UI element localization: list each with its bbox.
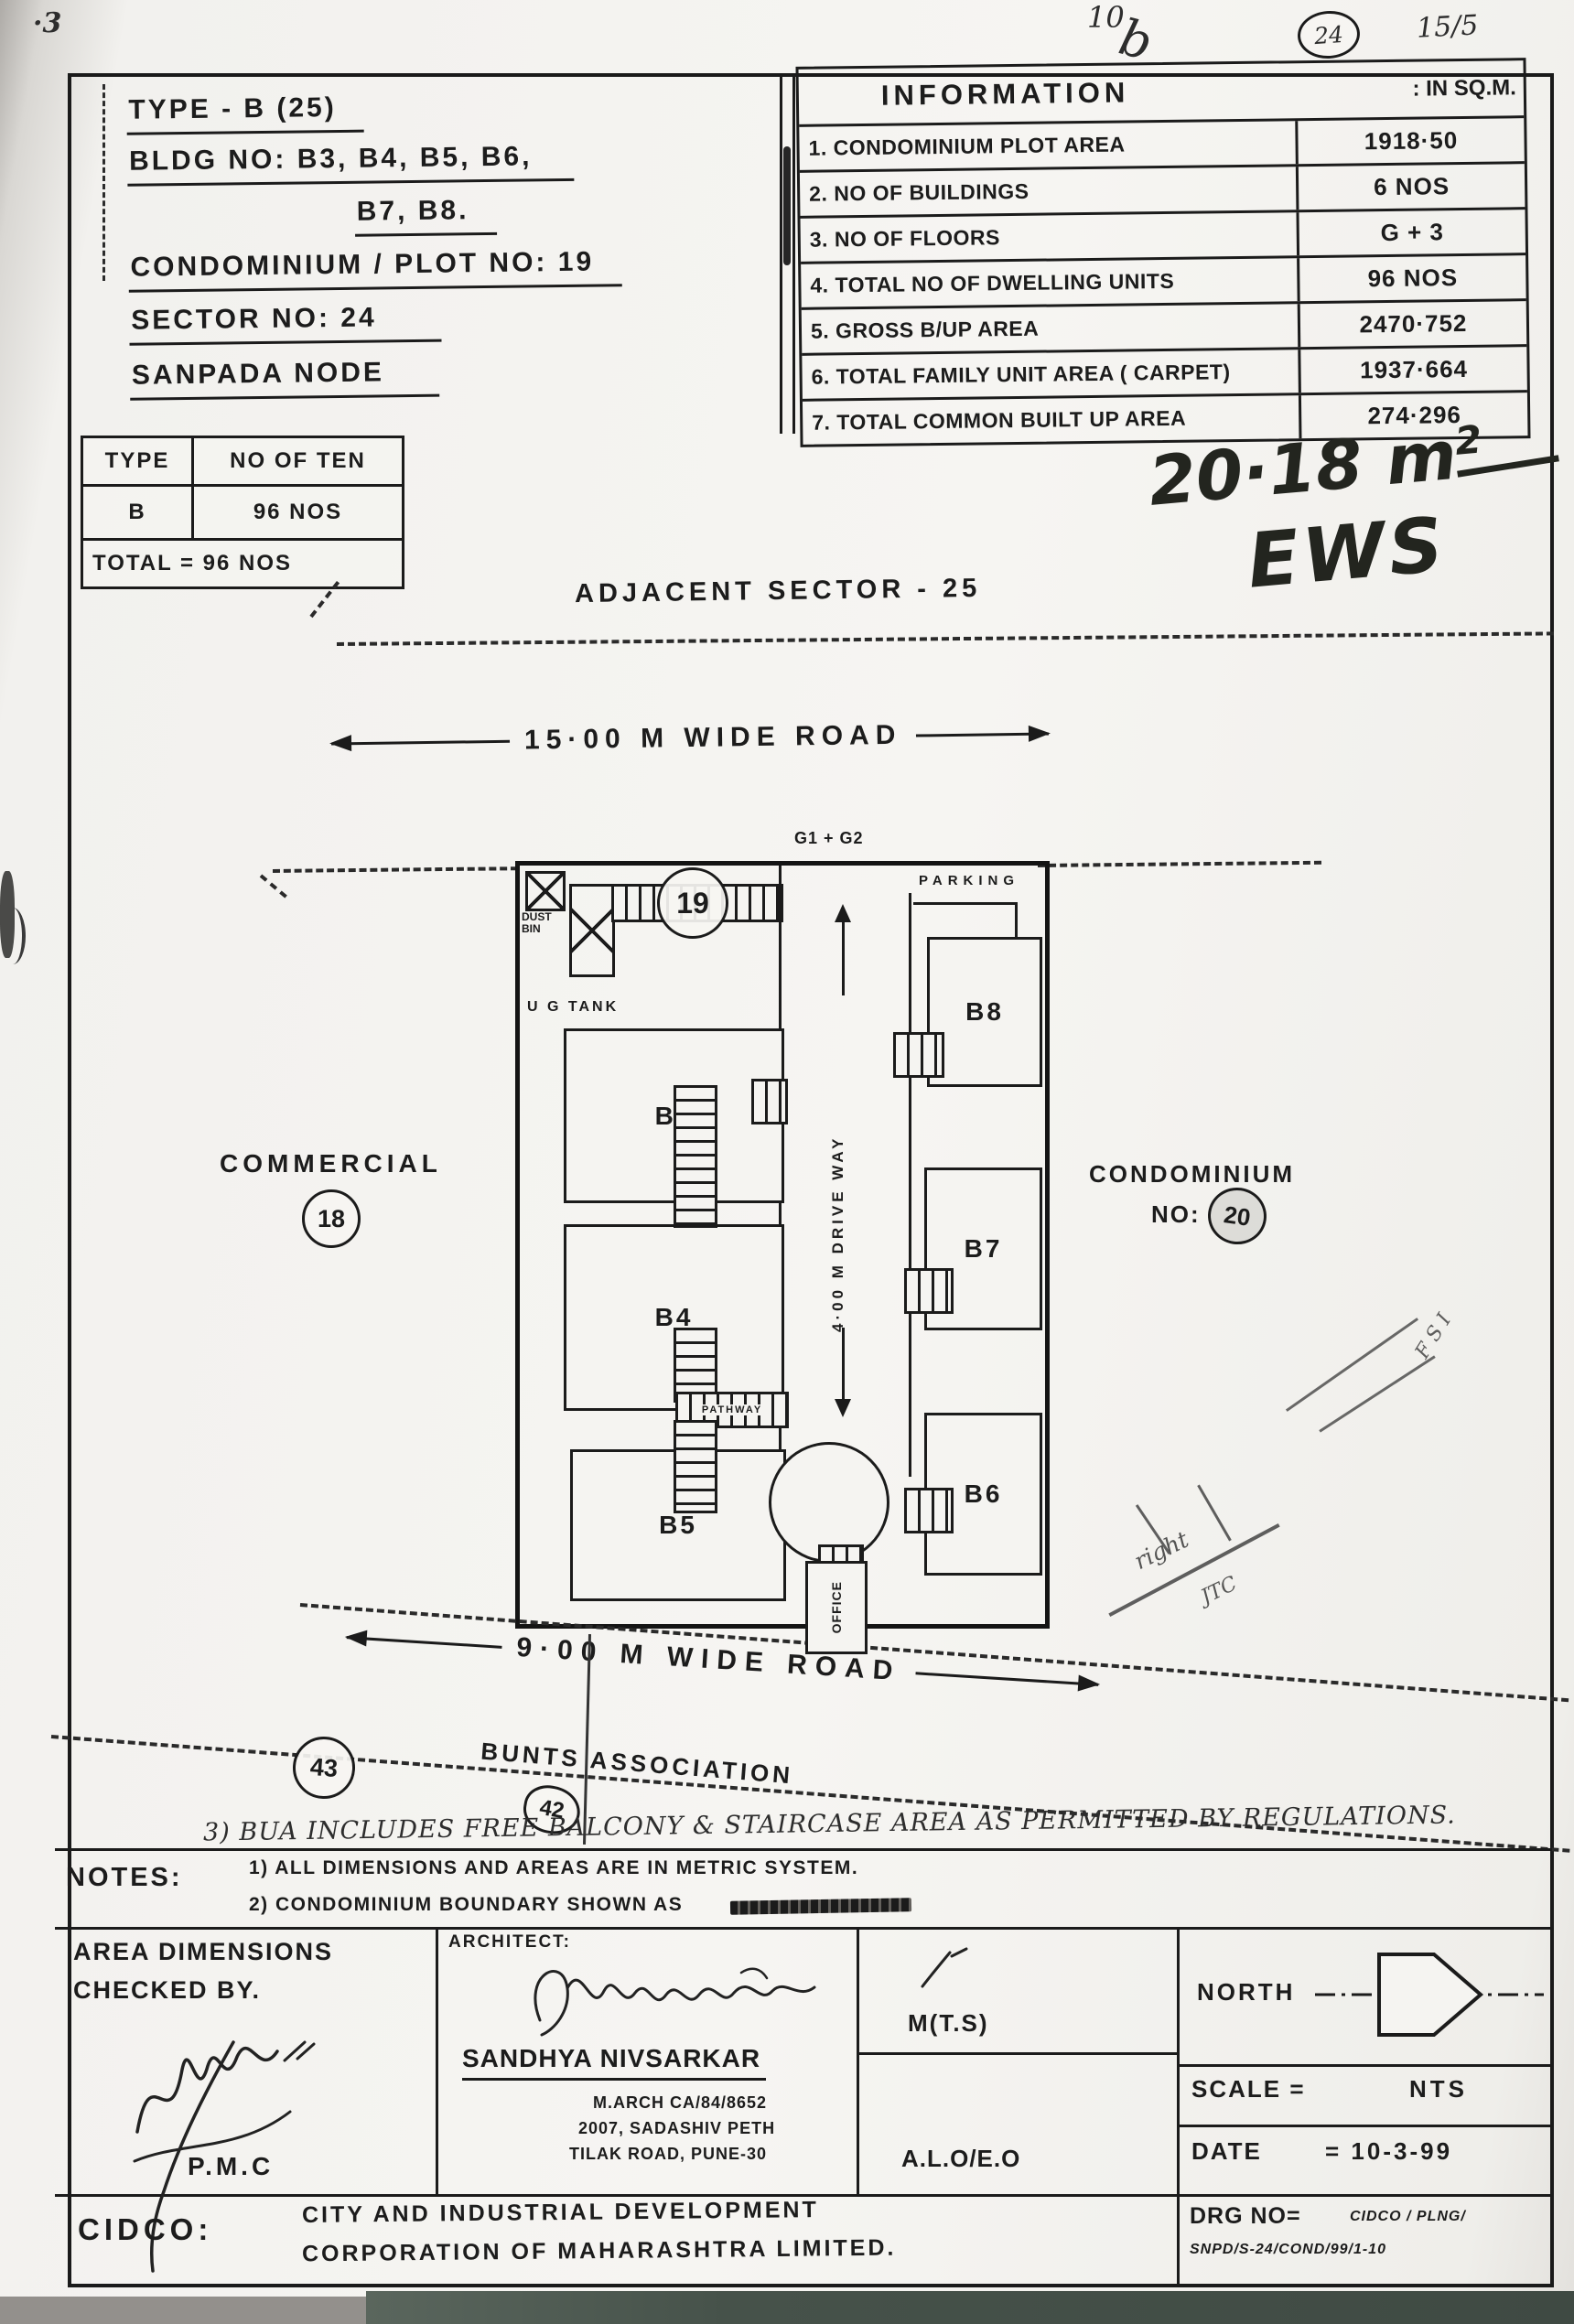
title-bldg-no: BLDG NO: B3, B4, B5, B6, — [127, 141, 575, 187]
footer-v2 — [857, 1927, 859, 2197]
north-arrow-icon — [1310, 1942, 1548, 2047]
scan-bottom-band-dark — [366, 2291, 1574, 2324]
parking-label: PARKING — [919, 873, 1019, 888]
architect-reg: M.ARCH CA/84/8652 — [593, 2093, 767, 2113]
info-row-1: 1. CONDOMINIUM PLOT AREA1918·50 — [799, 115, 1525, 170]
divider-ink-blob — [783, 146, 791, 265]
pathway-label: PATHWAY — [700, 1404, 764, 1415]
office-box: OFFICE — [805, 1561, 868, 1654]
building-b6-label: B6 — [965, 1479, 1003, 1509]
info-row-1-value: 1918·50 — [1295, 118, 1525, 164]
scale-value: NTS — [1409, 2075, 1468, 2103]
type-col-header: TYPE — [83, 438, 191, 484]
info-row-2-value: 6 NOS — [1296, 164, 1525, 210]
info-row-3-label: 3. NO OF FLOORS — [801, 212, 1298, 262]
plot-number-circle: 19 — [657, 867, 728, 939]
title-node: SANPADA NODE — [130, 357, 440, 401]
info-row-3-value: G + 3 — [1296, 210, 1525, 255]
cidco-name-line1: CITY AND INDUSTRIAL DEVELOPMENT — [302, 2197, 819, 2229]
pmc-label: P.M.C — [188, 2152, 274, 2181]
type-b-count-cell: 96 NOS — [191, 487, 402, 538]
type-total-cell: TOTAL = 96 NOS — [83, 541, 292, 586]
checked-by-line1: AREA DIMENSIONS — [73, 1938, 333, 1966]
g1-g2-label: G1 + G2 — [794, 829, 864, 848]
b6-stair-connector — [904, 1488, 954, 1533]
drg-no-value-1: CIDCO / PLNG/ — [1350, 2209, 1466, 2225]
information-header-row: INFORMATION : IN SQ.M. — [799, 60, 1525, 124]
architect-addr2: TILAK ROAD, PUNE-30 — [569, 2145, 767, 2164]
type-b-cell: B — [83, 487, 191, 538]
driveway-up-arrowhead-icon — [835, 904, 851, 922]
ug-tank-box — [569, 884, 615, 977]
mts-tick-mark — [915, 1945, 979, 1996]
road-top-text: 15·00 M WIDE ROAD — [524, 720, 902, 757]
condominium-right-label: CONDOMINIUM — [1089, 1160, 1295, 1189]
road-top-arrow-right — [916, 732, 1049, 737]
information-title: INFORMATION — [799, 62, 1369, 124]
b5-stair-strip — [674, 1420, 717, 1513]
footer-north-rule — [1177, 2064, 1552, 2067]
road-top-arrow-left — [331, 739, 510, 745]
date-value: = 10-3-99 — [1325, 2137, 1452, 2166]
info-row-4-label: 4. TOTAL NO OF DWELLING UNITS — [801, 258, 1298, 307]
ug-tank-label: U G TANK — [527, 999, 619, 1016]
title-condominium-plot: CONDOMINIUM / PLOT NO: 19 — [128, 246, 621, 293]
plot-boundary: DUST BIN U G TANK 19 4·00 M DRIVE WAY OF… — [515, 861, 1050, 1629]
building-b8-label: B8 — [965, 997, 1004, 1027]
info-row-2: 2. NO OF BUILDINGS6 NOS — [800, 161, 1525, 216]
footer-v1 — [436, 1927, 438, 2197]
plot-43-text: 43 — [309, 1752, 339, 1782]
scanned-drawing-sheet: ·3 10 b 24 15/5 TYPE - B (25) BLDG NO: B… — [0, 0, 1574, 2324]
area-value-sup: 2 — [1453, 417, 1483, 464]
commercial-circle-18: 18 — [302, 1189, 361, 1248]
parking-line-h — [913, 902, 1017, 905]
info-row-1-label: 1. CONDOMINIUM PLOT AREA — [799, 121, 1296, 170]
office-label: OFFICE — [829, 1581, 844, 1633]
scale-label: SCALE = — [1191, 2075, 1306, 2103]
notes-top-rule — [55, 1848, 1552, 1851]
b3-b4-stair-strip — [674, 1085, 717, 1228]
title-block: TYPE - B (25) BLDG NO: B3, B4, B5, B6, B… — [0, 0, 826, 462]
b8-stair-connector — [893, 1032, 944, 1078]
note-1: 1) ALL DIMENSIONS AND AREAS ARE IN METRI… — [249, 1857, 858, 1879]
top-circled-24: 24 — [1296, 9, 1361, 61]
driveway-down-arrow-line — [842, 1328, 845, 1401]
condominium-no-label: NO: — [1151, 1200, 1201, 1229]
arrow-right-icon — [1029, 725, 1051, 741]
info-row-2-label: 2. NO OF BUILDINGS — [800, 167, 1297, 216]
top-date-mark: 15/5 — [1416, 9, 1479, 44]
driveway-right-line — [909, 893, 911, 1477]
commercial-circle-text: 18 — [318, 1205, 345, 1233]
condominium-circle-text: 20 — [1223, 1200, 1253, 1232]
arrow-left-icon — [329, 735, 351, 751]
info-row-5: 5. GROSS B/UP AREA2470·752 — [802, 298, 1527, 353]
drg-no-value-2: SNPD/S-24/COND/99/1-10 — [1190, 2242, 1386, 2258]
plot-number-text: 19 — [676, 887, 709, 920]
driveway-b3-connector — [751, 1079, 788, 1124]
footer-top-rule — [55, 1927, 1552, 1930]
adjacent-sector-label: ADJACENT SECTOR - 25 — [575, 574, 982, 609]
info-row-4: 4. TOTAL NO OF DWELLING UNITS96 NOS — [801, 253, 1526, 307]
building-b7-label: B7 — [965, 1234, 1003, 1264]
building-b5-label: B5 — [659, 1511, 697, 1540]
driveway-label: 4·00 M DRIVE WAY — [829, 1003, 847, 1332]
info-row-6-value: 1937·664 — [1298, 347, 1527, 393]
architect-signature — [512, 1947, 833, 2048]
architect-addr1: 2007, SADASHIV PETH — [578, 2119, 775, 2138]
footer-scale-rule — [1177, 2125, 1552, 2127]
scan-bottom-band-light — [0, 2297, 366, 2324]
title-type: TYPE - B (25) — [126, 92, 364, 135]
top-circled-24-text: 24 — [1313, 20, 1344, 48]
tenements-col-header: NO OF TEN — [191, 438, 402, 484]
footer-v3 — [1177, 1927, 1180, 2286]
info-row-5-value: 2470·752 — [1298, 301, 1527, 347]
road-bottom-arrow-right — [915, 1672, 1098, 1686]
info-row-5-label: 5. GROSS B/UP AREA — [802, 304, 1299, 353]
scan-left-paren-mark — [0, 908, 26, 964]
dust-bin-box — [525, 871, 566, 911]
drg-no-label: DRG NO= — [1190, 2203, 1301, 2230]
divider-line-2 — [792, 75, 795, 434]
mts-label: M(T.S) — [908, 2009, 989, 2038]
info-row-6-label: 6. TOTAL FAMILY UNIT AREA ( CARPET) — [802, 350, 1299, 399]
info-row-6: 6. TOTAL FAMILY UNIT AREA ( CARPET)1937·… — [802, 344, 1527, 399]
architect-name: SANDHYA NIVSARKAR — [462, 2044, 766, 2081]
information-unit: : IN SQ.M. — [1367, 60, 1524, 117]
info-row-4-value: 96 NOS — [1297, 255, 1526, 301]
alo-eo-label: A.L.O/E.O — [901, 2145, 1020, 2173]
arrow-right-icon-2 — [1077, 1674, 1100, 1692]
type-table-row-b: B 96 NOS — [83, 484, 402, 538]
divider-line-1 — [780, 75, 782, 434]
top-handwritten-10: 10 — [1087, 0, 1125, 35]
date-label: DATE — [1191, 2137, 1262, 2166]
road-bottom-arrow-left — [347, 1636, 502, 1649]
driveway-up-arrow-line — [842, 920, 845, 995]
arrow-left-icon-2 — [344, 1629, 367, 1646]
dust-bin-label: DUST BIN — [522, 911, 564, 935]
cidco-label: CIDCO: — [78, 2212, 212, 2247]
north-label: NORTH — [1197, 1978, 1295, 2007]
title-sector: SECTOR NO: 24 — [129, 302, 441, 346]
parking-line-v — [1015, 902, 1018, 939]
commercial-label: COMMERCIAL — [220, 1149, 442, 1178]
notes-label: NOTES: — [66, 1863, 183, 1893]
checked-by-line2: CHECKED BY. — [73, 1976, 261, 2005]
handwritten-ews: EWS — [1245, 501, 1450, 606]
title-bldg-no-2: B7, B8. — [355, 195, 497, 237]
type-table-total-row: TOTAL = 96 NOS — [83, 538, 402, 586]
b7-stair-connector — [904, 1268, 954, 1314]
driveway-down-arrowhead-icon — [835, 1399, 851, 1417]
info-row-3: 3. NO OF FLOORSG + 3 — [800, 207, 1525, 262]
type-table-header: TYPE NO OF TEN — [83, 438, 402, 484]
note-2: 2) CONDOMINIUM BOUNDARY SHOWN AS — [249, 1894, 683, 1916]
information-table: INFORMATION : IN SQ.M. 1. CONDOMINIUM PL… — [795, 58, 1530, 447]
footer-mts-rule — [857, 2052, 1179, 2055]
type-table: TYPE NO OF TEN B 96 NOS TOTAL = 96 NOS — [81, 436, 404, 589]
